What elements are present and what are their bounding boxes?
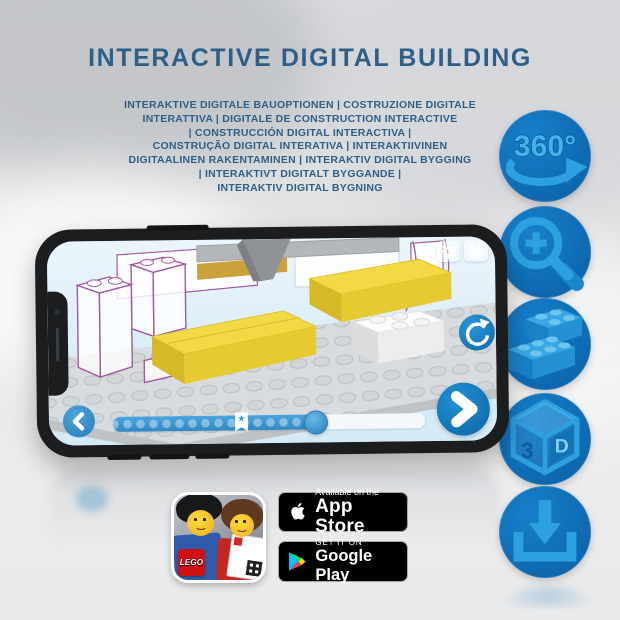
slider-knob[interactable] xyxy=(304,410,328,434)
zoom-in-icon xyxy=(499,206,591,298)
phone-notch xyxy=(47,291,68,395)
minifig-eye xyxy=(235,520,238,523)
badge-store-name: App Store xyxy=(315,497,399,537)
poster: INTERACTIVE DIGITAL BUILDING INTERAKTIVE… xyxy=(0,0,620,620)
phone-side-button xyxy=(195,454,229,459)
phone-side-button xyxy=(107,455,141,460)
next-step-button[interactable] xyxy=(437,382,491,436)
google-play-badge[interactable]: GET IT ON Google Play xyxy=(278,541,408,582)
3d-cube-icon: 3 D xyxy=(499,393,591,485)
gear-icon xyxy=(439,243,458,260)
phone-side-button xyxy=(149,454,189,459)
app-store-badge[interactable]: Available on the App Store xyxy=(278,492,408,532)
bottom-fade xyxy=(0,588,620,620)
badge-text: Available on the App Store xyxy=(315,487,399,537)
page-title: INTERACTIVE DIGITAL BUILDING xyxy=(0,44,620,73)
subtitle-line: DIGITAALINEN RAKENTAMINEN | INTERAKTIV D… xyxy=(60,154,540,168)
bricks-icon xyxy=(499,298,591,390)
feature-bricks xyxy=(499,298,591,390)
qr-code xyxy=(246,560,263,577)
step-dots xyxy=(113,414,316,431)
app-screen: ★ xyxy=(47,236,497,445)
badge-text: GET IT ON Google Play xyxy=(315,538,399,585)
subtitle-line: CONSTRUÇÃO DIGITAL INTERATIVA | INTERAKT… xyxy=(60,140,540,154)
minifig-eye xyxy=(243,520,246,523)
feature-3d-view: 3 D xyxy=(499,393,591,485)
minifig-smile xyxy=(195,522,207,530)
chevron-right-icon xyxy=(437,382,491,436)
feature-zoom xyxy=(499,206,591,298)
instruction-card xyxy=(226,534,266,582)
close-icon xyxy=(466,241,486,259)
reflection-highlight xyxy=(76,486,108,512)
subtitle-line: INTERAKTIV DIGITAL BYGNING xyxy=(60,182,540,196)
chevron-left-icon xyxy=(63,405,95,437)
google-play-icon xyxy=(289,550,307,573)
speaker-slit xyxy=(56,328,59,362)
apple-icon xyxy=(289,500,307,524)
svg-text:D: D xyxy=(555,435,569,457)
lego-app-icon[interactable]: LEGO xyxy=(171,492,266,583)
feature-360-rotation: 360° xyxy=(499,110,591,202)
rotate-view-button[interactable] xyxy=(459,314,495,350)
settings-button[interactable] xyxy=(437,241,460,262)
progress-fill xyxy=(113,414,316,431)
lego-logo: LEGO xyxy=(178,549,205,576)
lego-logo-text: LEGO xyxy=(180,558,203,567)
svg-text:3: 3 xyxy=(521,437,534,463)
360-rotation-icon: 360° xyxy=(499,110,591,202)
rotate-icon xyxy=(459,314,495,350)
subtitle-line: | INTERAKTIVT DIGITALT BYGGANDE | xyxy=(60,168,540,182)
subtitle-line: INTERATTIVA | DIGITALE DE CONSTRUCTION I… xyxy=(60,113,540,127)
card-red-square xyxy=(234,537,243,546)
badge-tagline: GET IT ON xyxy=(315,538,399,547)
phone-side-button xyxy=(147,225,209,231)
subtitle-line: INTERAKTIVE DIGITALE BAUOPTIONEN | COSTR… xyxy=(60,99,540,113)
previous-step-button[interactable] xyxy=(63,405,95,437)
close-button[interactable] xyxy=(464,239,488,261)
minifig-eye xyxy=(194,518,197,521)
camera-dot xyxy=(55,310,60,315)
subtitle-line: | CONSTRUCCIÓN DIGITAL INTERACTIVA | xyxy=(60,127,540,141)
multilingual-subtitle: INTERAKTIVE DIGITALE BAUOPTIONEN | COSTR… xyxy=(60,99,540,196)
minifig-eye xyxy=(203,518,206,521)
phone-reflection xyxy=(50,468,500,560)
badge-store-name: Google Play xyxy=(315,547,399,585)
download-icon xyxy=(499,486,591,578)
minifig-smile xyxy=(236,524,248,532)
feature-download xyxy=(499,486,591,578)
phone-mockup: ★ xyxy=(35,224,510,458)
